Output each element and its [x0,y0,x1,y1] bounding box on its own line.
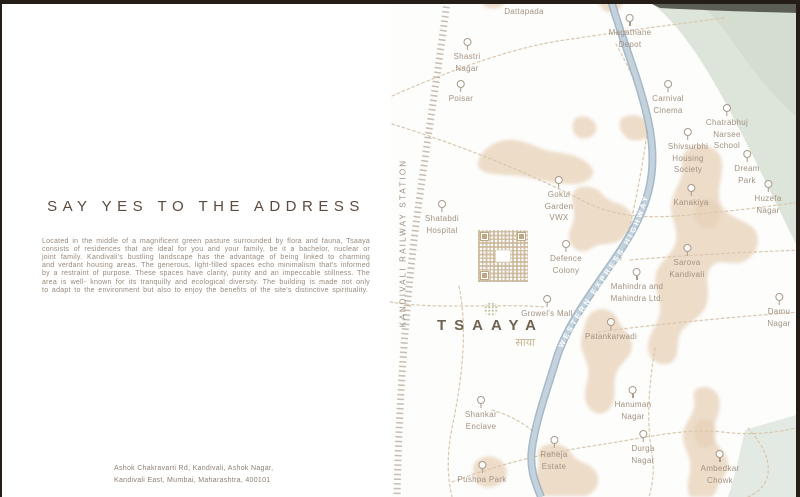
map-marker-label: Shivsurbhi Housing Society [668,141,708,176]
map-marker-kanakiya: Kanakiya [673,184,708,209]
map-pin-icon [716,450,724,458]
map-marker-label: Damu Nagar [767,306,790,329]
map-marker-damu-nagar: Damu Nagar [767,293,790,329]
page-title: SAY YES TO THE ADDRESS [40,198,372,215]
map-pin-icon [764,180,772,188]
map-marker-label: Huzefa Nagar [754,193,781,216]
map-marker-label: Carnival Cinema [652,93,684,116]
map-pin-icon [607,318,615,326]
map-pin-icon [723,104,731,112]
map-marker-huzefa-nagar: Huzefa Nagar [754,180,781,216]
brochure-text-panel: SAY YES TO THE ADDRESS Located in the mi… [2,4,390,497]
qr-finder-icon [480,271,489,280]
map-marker-defence-colony: Defence Colony [550,240,582,276]
map-pin-icon [457,80,465,88]
map-marker-gokul-garden-vwx: Gokul Garden VWX [545,176,573,224]
map-marker-label: Magathane Depot [609,27,652,50]
frame-top-edge [0,0,800,4]
brochure-page: WESTERN EXPRESS HIGHWAY KANDIVALI RAILWA… [0,0,800,497]
map-marker-ambedkar-chowk: Ambedkar Chowk [701,450,740,486]
map-marker-durga-nagar: Durga Nagar [631,430,654,466]
map-marker-label: Defence Colony [550,253,582,276]
map-pin-icon [562,240,570,248]
map-pin-icon [626,14,634,22]
map-marker-dattapada: Dattapada [504,6,544,18]
map-pin-icon [743,150,751,158]
map-marker-shankar-enclave: Shankar Enclave [465,396,497,432]
map-marker-carnival-cinema: Carnival Cinema [652,80,684,116]
frame-right-edge [796,0,800,497]
map-marker-label: Ambedkar Chowk [701,463,740,486]
frame-left-edge [0,0,2,497]
tree-icon [484,302,498,316]
map-pin-icon [683,244,691,252]
map-marker-label: Poisar [449,93,473,105]
map-pin-icon [684,128,692,136]
map-marker-label: Mahindra and Mahindra Ltd. [611,281,664,304]
map-pin-icon [633,268,641,276]
project-address: Ashok Chakravarti Rd, Kandivali, Ashok N… [114,463,273,488]
map-marker-label: Kanakiya [673,197,708,209]
map-pin-icon [639,430,647,438]
map-marker-label: Patankarwadi [585,331,637,343]
map-marker-label: Sarova Kandivali [669,257,704,280]
map-pin-icon [629,386,637,394]
map-marker-label: Shankar Enclave [465,409,497,432]
map-marker-magathane-depot: Magathane Depot [609,14,652,50]
address-line-2: Kandivali East, Mumbai, Maharashtra, 400… [114,475,273,487]
map-marker-pushpa-park: Pushpa Park [457,461,506,486]
map-marker-poisar: Poisar [449,80,473,105]
map-pin-icon [477,396,485,404]
qr-center-logo [495,250,511,263]
qr-code [478,230,528,282]
map-marker-label: Raheja Estate [540,449,567,472]
railway-station-label: KANDIVALI RAILWAY STATION [399,159,408,328]
map-marker-label: Pushpa Park [457,474,506,486]
map-pin-icon [555,176,563,184]
map-pin-icon [478,461,486,469]
map-marker-label: Shatabdi Hospital [425,213,459,236]
map-marker-label: Chatrabhuj Narsee School [706,117,748,152]
map-pin-icon [438,200,446,208]
map-marker-mahindra-and-mahindra: Mahindra and Mahindra Ltd. [611,268,664,304]
qr-finder-icon [517,232,526,241]
qr-finder-icon [480,232,489,241]
map-pin-icon [664,80,672,88]
map-marker-shastri-nagar: Shastri Nagar [454,38,481,74]
brand-devanagari: साया [437,335,535,350]
map-pin-icon [463,38,471,46]
map-marker-hanuman-nagar: Hanuman Nagar [615,386,652,422]
map-marker-label: Shastri Nagar [454,51,481,74]
map-marker-raheja-estate: Raheja Estate [540,436,567,472]
map-pin-icon [543,295,551,303]
map-marker-shivsurbhi-housing-society: Shivsurbhi Housing Society [668,128,708,176]
tsaaya-logo: TSAAYA साया [437,302,539,350]
map-marker-sarova-kandivali: Sarova Kandivali [669,244,704,280]
map-marker-label: Durga Nagar [631,443,654,466]
map-marker-label: Gokul Garden VWX [545,189,573,224]
map-pin-icon [550,436,558,444]
address-line-1: Ashok Chakravarti Rd, Kandivali, Ashok N… [114,463,273,475]
map-marker-label: Hanuman Nagar [615,399,652,422]
map-marker-chatrabhuj-narsee-school: Chatrabhuj Narsee School [706,104,748,152]
description-paragraph: Located in the middle of a magnificent g… [42,238,370,295]
map-marker-label: Dattapada [504,6,544,18]
map-marker-patankarwadi: Patankarwadi [585,318,637,343]
map-pin-icon [687,184,695,192]
map-marker-shatabdi-hospital: Shatabdi Hospital [425,200,459,236]
map-pin-icon [775,293,783,301]
